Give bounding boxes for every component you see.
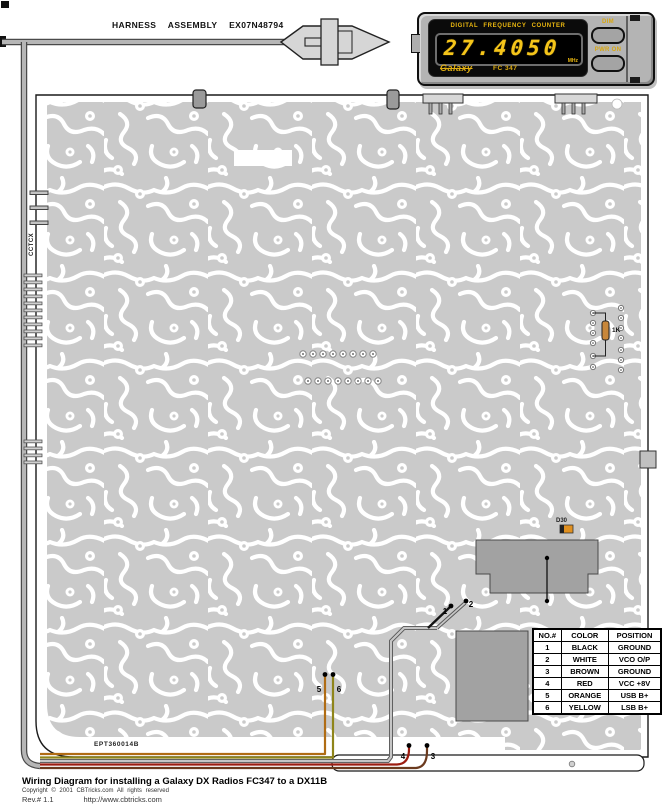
frequency-readout: 27.4050: [443, 36, 561, 60]
copyright-line: Copyright © 2001 CBTricks.com All rights…: [22, 788, 327, 794]
harness-connector: [281, 19, 389, 65]
board-side-label: CCTCX: [29, 233, 35, 256]
digit-window: 27.4050 MHz: [435, 33, 583, 66]
harness-assembly-label: HARNESS ASSEMBLY EX07N48794: [112, 20, 284, 30]
wire-label-6: 6: [337, 685, 342, 694]
table-row: 4 RED VCC +8V: [533, 678, 661, 690]
cell-position: GROUND: [609, 666, 661, 678]
counter-divider: [626, 16, 628, 82]
wire-point-1: [449, 604, 454, 609]
wire-label-1: 1: [443, 607, 448, 616]
shield-component: [476, 540, 598, 593]
wire-point-2: [464, 599, 469, 604]
revision-label: Rev.# 1.1: [22, 795, 54, 804]
pin-table: NO.# COLOR POSITION 1 BLACK GROUND 2 WHI…: [532, 628, 662, 715]
cell-no: 2: [533, 654, 561, 666]
d30-label: D30: [556, 518, 568, 524]
table-row: 5 ORANGE USB B+: [533, 690, 661, 702]
mounting-post: [193, 90, 206, 108]
counter-screw-bottom: [630, 77, 640, 83]
wire-point-6: [331, 672, 336, 677]
pour-cutout: [234, 150, 292, 166]
cell-color: ORANGE: [561, 690, 608, 702]
cell-no: 5: [533, 690, 561, 702]
gray-block-component: [456, 631, 528, 721]
wire-point-5: [323, 672, 328, 677]
column-header-position: POSITION: [609, 629, 661, 642]
cell-color: BROWN: [561, 666, 608, 678]
model-label: FC 347: [493, 65, 517, 72]
dim-label: DIM: [590, 19, 626, 25]
footer: Wiring Diagram for installing a Galaxy D…: [22, 776, 327, 804]
counter-controls: DIM PWR ON: [590, 19, 626, 75]
cell-position: USB B+: [609, 690, 661, 702]
column-header-no: NO.#: [533, 629, 561, 642]
counter-display: DIGITAL FREQUENCY COUNTER 27.4050 MHz Ga…: [428, 19, 588, 77]
frequency-counter: DIGITAL FREQUENCY COUNTER 27.4050 MHz Ga…: [417, 12, 655, 86]
counter-screw-top: [630, 15, 640, 21]
wire-label-4: 4: [401, 752, 406, 761]
table-row: 1 BLACK GROUND: [533, 642, 661, 654]
counter-title: DIGITAL FREQUENCY COUNTER: [429, 23, 587, 29]
cell-color: YELLOW: [561, 702, 608, 715]
board-part-number: EPT360014B: [94, 741, 139, 748]
wiring-diagram-page: CCTCX: [0, 0, 662, 808]
dim-button: [591, 27, 625, 44]
cell-position: LSB B+: [609, 702, 661, 715]
cell-position: VCO O/P: [609, 654, 661, 666]
resistor-label: 1K: [612, 327, 621, 334]
scan-artifact: [1, 1, 9, 8]
cell-color: BLACK: [561, 642, 608, 654]
wire-point-3: [425, 743, 430, 748]
table-row: 6 YELLOW LSB B+: [533, 702, 661, 715]
pin-table-header-row: NO.# COLOR POSITION: [533, 629, 661, 642]
cell-color: WHITE: [561, 654, 608, 666]
wire-label-5: 5: [317, 685, 322, 694]
table-row: 2 WHITE VCO O/P: [533, 654, 661, 666]
table-row: 3 BROWN GROUND: [533, 666, 661, 678]
mhz-unit-label: MHz: [568, 58, 578, 64]
cell-position: VCC +8V: [609, 678, 661, 690]
cell-color: RED: [561, 678, 608, 690]
column-header-color: COLOR: [561, 629, 608, 642]
right-edge-tab: [640, 451, 656, 468]
cell-no: 4: [533, 678, 561, 690]
brand-logo: Galaxy: [440, 63, 473, 73]
wire-label-3: 3: [431, 752, 436, 761]
pwr-on-button: [591, 55, 625, 72]
wire-label-2: 2: [469, 600, 474, 609]
cell-no: 6: [533, 702, 561, 715]
cell-position: GROUND: [609, 642, 661, 654]
wire-point-4: [407, 743, 412, 748]
mounting-post: [387, 90, 399, 109]
website-url: http://www.cbtricks.com: [84, 795, 162, 804]
counter-mount-tab: [411, 34, 420, 53]
diagram-title: Wiring Diagram for installing a Galaxy D…: [22, 776, 327, 787]
cell-no: 3: [533, 666, 561, 678]
pwr-on-label: PWR ON: [590, 47, 626, 53]
cell-no: 1: [533, 642, 561, 654]
